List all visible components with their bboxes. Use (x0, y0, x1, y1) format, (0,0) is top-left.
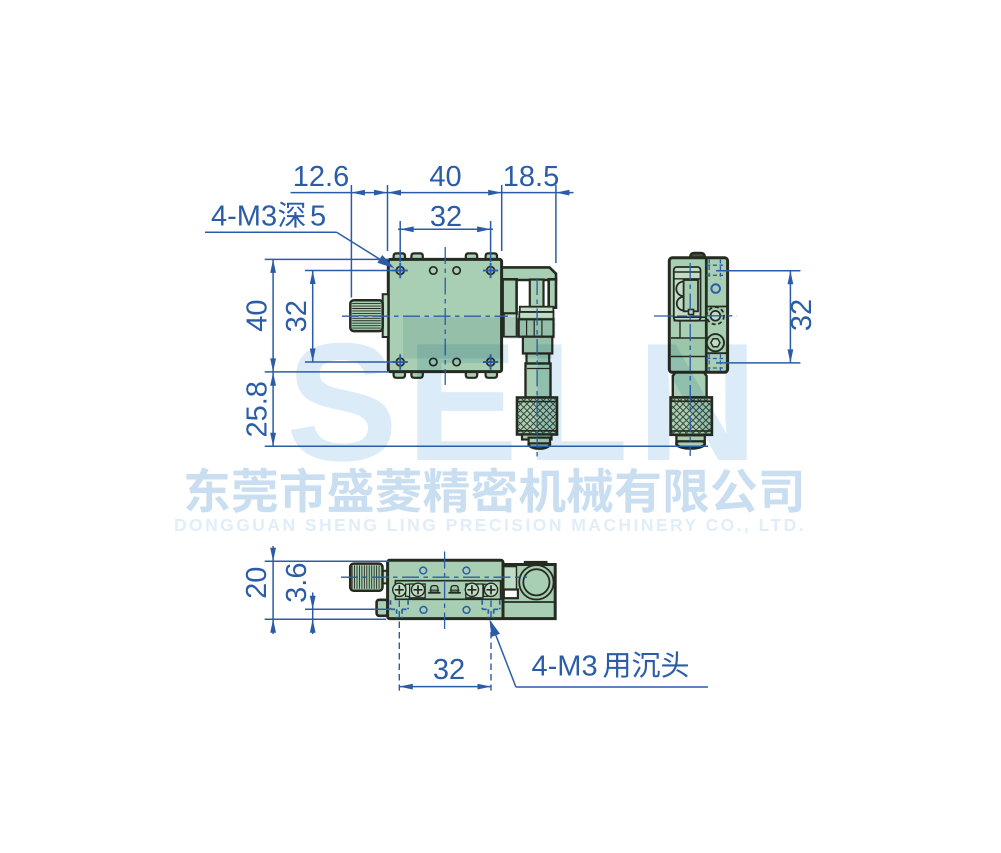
svg-text:SELN: SELN (286, 308, 766, 496)
svg-text:32: 32 (786, 299, 818, 331)
svg-text:12.6: 12.6 (293, 161, 349, 193)
svg-text:18.5: 18.5 (503, 161, 559, 193)
svg-text:32: 32 (430, 201, 462, 233)
svg-text:5: 5 (310, 201, 326, 233)
svg-text:20: 20 (241, 567, 273, 599)
svg-text:4-M3: 4-M3 (211, 201, 277, 233)
svg-text:4-M3: 4-M3 (532, 651, 598, 683)
svg-text:DONGGUAN SHENG LING PRECISION: DONGGUAN SHENG LING PRECISION MACHINERY … (174, 515, 806, 535)
svg-text:3.6: 3.6 (281, 563, 313, 603)
svg-text:40: 40 (242, 299, 274, 331)
svg-text:25.8: 25.8 (242, 381, 274, 437)
svg-text:32: 32 (281, 300, 313, 332)
svg-text:40: 40 (429, 161, 461, 193)
svg-text:32: 32 (433, 654, 465, 686)
